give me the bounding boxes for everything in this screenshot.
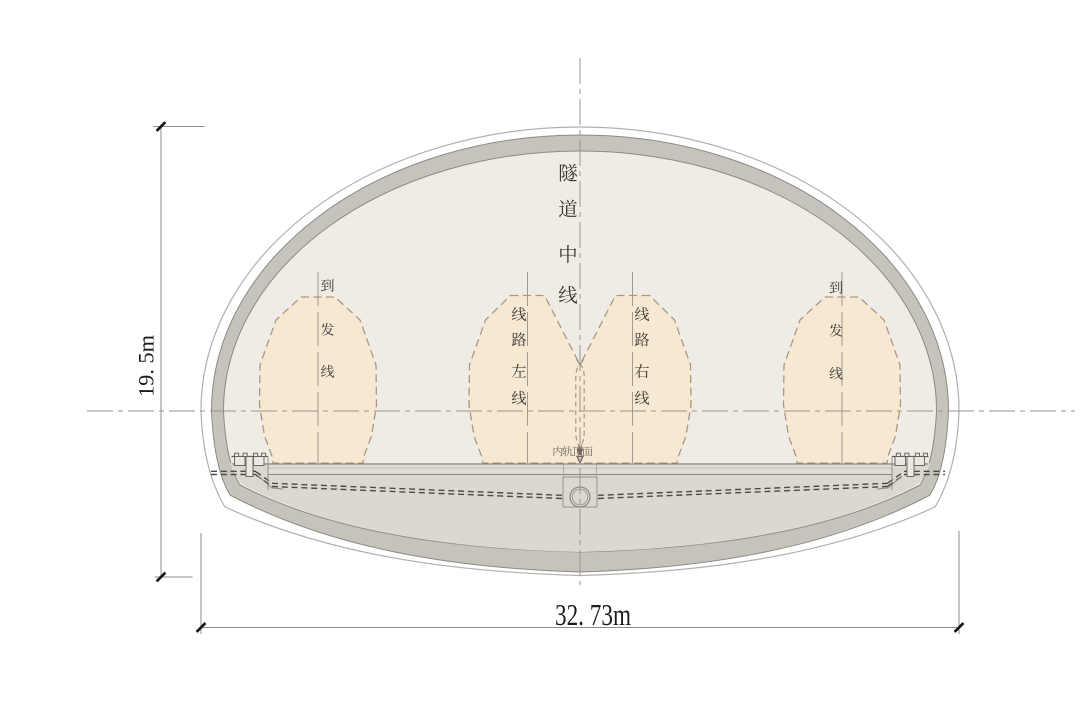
svg-text:19. 5m: 19. 5m	[134, 335, 159, 397]
svg-text:32. 73m: 32. 73m	[555, 597, 631, 632]
